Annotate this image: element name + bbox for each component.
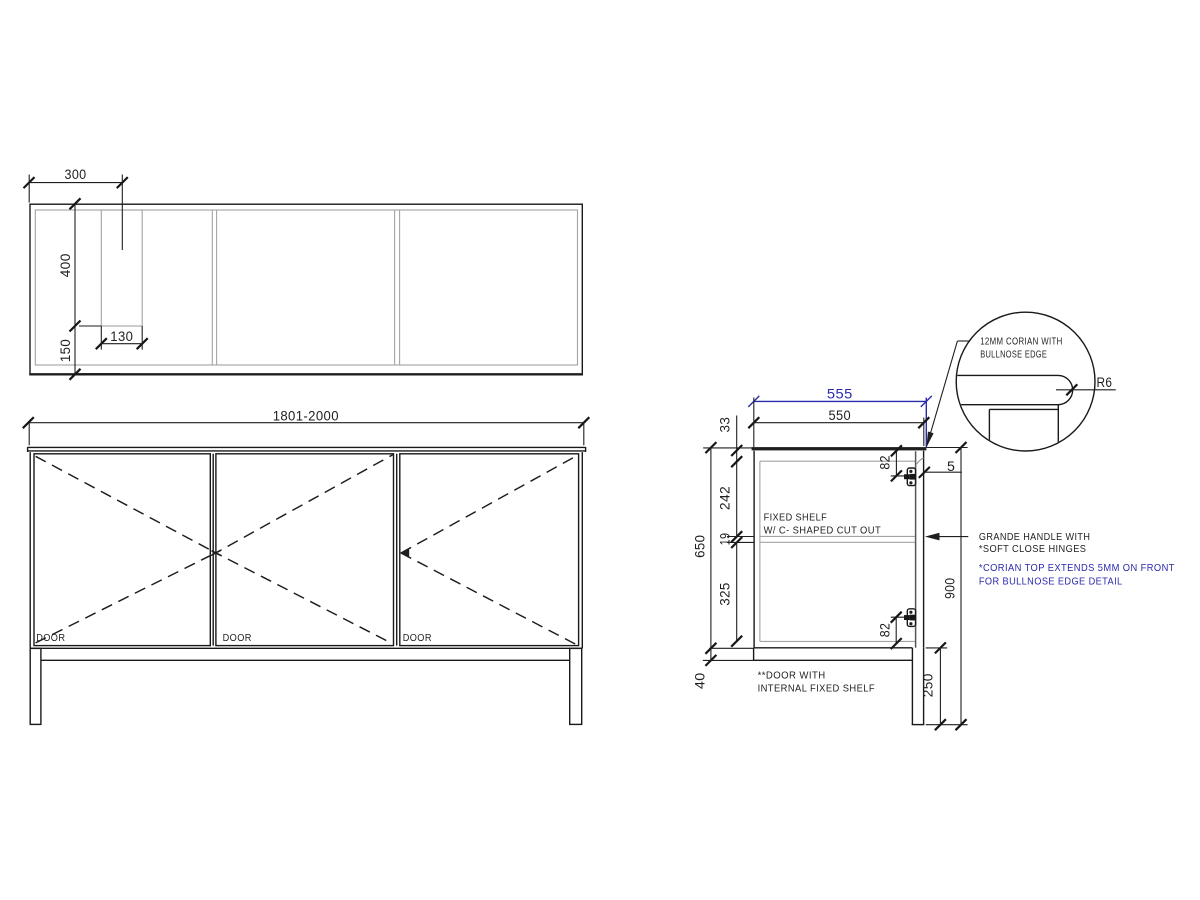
svg-text:150: 150 (58, 339, 74, 362)
svg-text:40: 40 (692, 672, 708, 689)
svg-text:250: 250 (921, 673, 937, 697)
svg-text:650: 650 (692, 535, 708, 558)
svg-text:W/ C- SHAPED CUT OUT: W/ C- SHAPED CUT OUT (764, 526, 882, 537)
svg-text:R6: R6 (1097, 375, 1113, 391)
svg-text:FIXED SHELF: FIXED SHELF (764, 512, 828, 523)
svg-text:130: 130 (110, 329, 133, 345)
svg-text:1801-2000: 1801-2000 (273, 408, 339, 424)
svg-text:*CORIAN TOP EXTENDS 5MM ON FRO: *CORIAN TOP EXTENDS 5MM ON FRONT (979, 563, 1175, 574)
svg-text:**DOOR WITH: **DOOR WITH (758, 671, 826, 682)
svg-text:33: 33 (718, 417, 734, 433)
svg-text:DOOR: DOOR (403, 633, 432, 644)
svg-text:900: 900 (943, 578, 959, 600)
svg-text:550: 550 (829, 408, 852, 424)
svg-text:325: 325 (718, 582, 734, 606)
svg-text:GRANDE HANDLE WITH: GRANDE HANDLE WITH (979, 532, 1091, 543)
svg-text:82: 82 (878, 455, 894, 470)
svg-text:INTERNAL FIXED SHELF: INTERNAL FIXED SHELF (758, 684, 876, 695)
svg-text:FOR BULLNOSE EDGE DETAIL: FOR BULLNOSE EDGE DETAIL (979, 577, 1123, 588)
svg-text:400: 400 (58, 253, 74, 277)
svg-text:19: 19 (718, 533, 734, 546)
svg-text:*SOFT CLOSE HINGES: *SOFT CLOSE HINGES (979, 544, 1087, 555)
svg-text:242: 242 (718, 486, 734, 510)
svg-text:DOOR: DOOR (223, 633, 252, 644)
svg-text:5: 5 (947, 459, 955, 475)
svg-text:300: 300 (65, 167, 87, 183)
svg-text:555: 555 (827, 387, 853, 403)
svg-text:82: 82 (878, 623, 894, 638)
svg-text:12MM CORIAN WITH: 12MM CORIAN WITH (980, 337, 1062, 348)
svg-text:BULLNOSE EDGE: BULLNOSE EDGE (980, 350, 1047, 361)
svg-text:DOOR: DOOR (36, 633, 65, 644)
